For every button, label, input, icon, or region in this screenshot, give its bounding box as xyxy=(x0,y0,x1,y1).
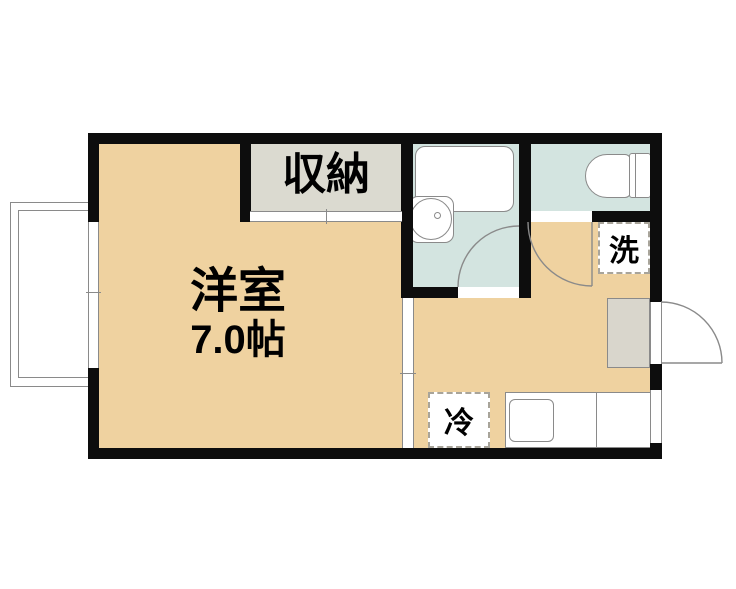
wall-right-mid xyxy=(650,364,662,391)
entry-door-swing xyxy=(661,302,722,363)
bathroom-door-gap xyxy=(458,287,519,298)
room-sliding-door-tick xyxy=(400,373,416,374)
wall-mid-vertical xyxy=(401,133,413,298)
closet-door-tick xyxy=(326,209,327,224)
room-name-label: 洋室 xyxy=(85,268,391,316)
floorplan-canvas: 洗 冷 収納 洋室 7.0帖 xyxy=(0,0,736,589)
fridge-space-box: 冷 xyxy=(428,392,490,448)
wash-basin-bowl xyxy=(410,198,452,240)
balcony-inner-rail xyxy=(18,210,89,378)
toilet-tank-line xyxy=(635,154,636,197)
washer-space-box: 洗 xyxy=(598,222,650,274)
closet-label: 収納 xyxy=(250,153,402,197)
toilet-door-gap xyxy=(531,211,592,222)
wall-top xyxy=(88,133,662,144)
wall-left-upper xyxy=(88,133,99,223)
wall-bath-right xyxy=(519,133,531,298)
wall-right-lower xyxy=(650,442,662,459)
counter-divider xyxy=(596,392,597,448)
room-area-label: 7.0帖 xyxy=(85,320,391,360)
wall-toilet-bottom xyxy=(592,211,662,222)
wash-basin-drain xyxy=(434,212,441,219)
toilet-tank xyxy=(629,153,651,198)
window-right-kitchen xyxy=(650,390,662,443)
fridge-label: 冷 xyxy=(444,398,474,442)
entrance-step xyxy=(607,298,650,368)
wall-left-lower xyxy=(88,367,99,459)
entry-door-gap xyxy=(650,302,662,364)
wall-bottom xyxy=(88,448,662,459)
toilet-bowl xyxy=(585,154,631,198)
washer-label: 洗 xyxy=(609,226,639,270)
kitchen-sink xyxy=(509,399,554,442)
wall-bath-bottom xyxy=(401,287,458,298)
